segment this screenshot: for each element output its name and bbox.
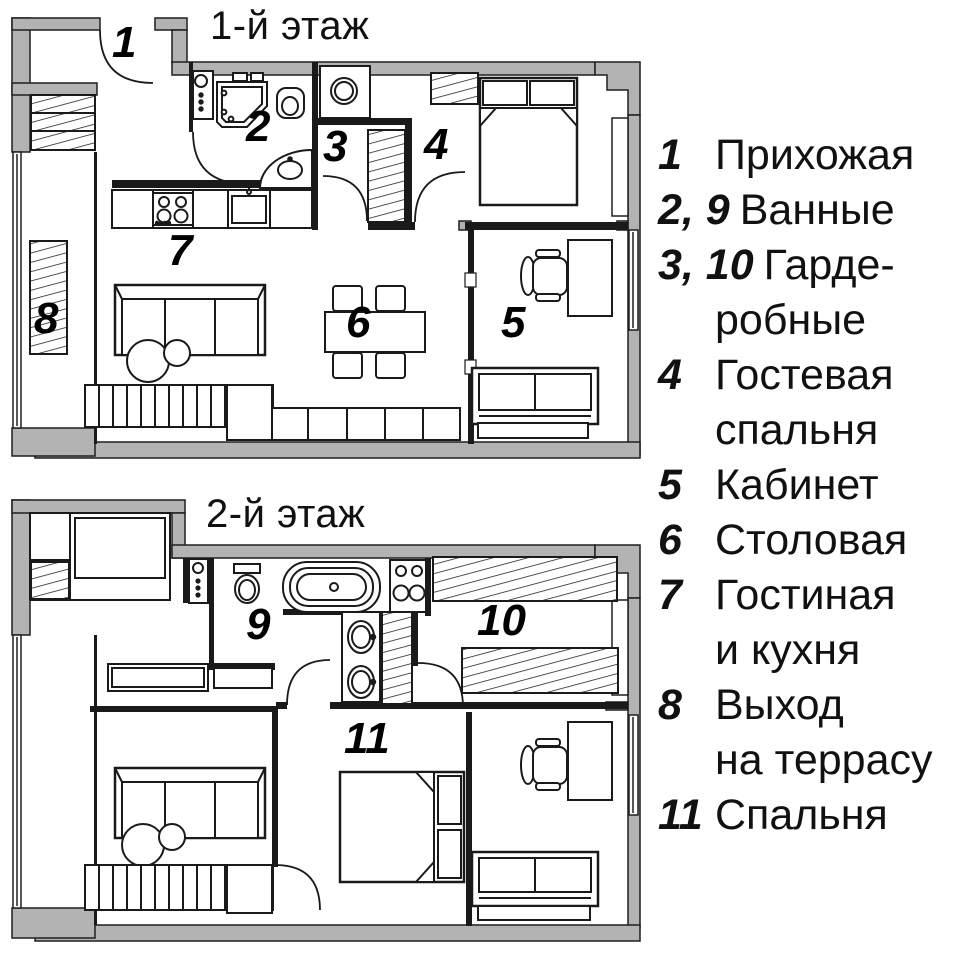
study-desk <box>568 240 612 316</box>
guest-bed <box>431 73 577 205</box>
dining-table <box>325 312 425 352</box>
floor2-title: 2-й этаж <box>206 492 365 537</box>
floor1-plan <box>12 18 640 458</box>
legend-item-label: Гостевая спальня <box>715 351 894 454</box>
wardrobe10-rack-bottom <box>462 648 618 693</box>
legend: 1Прихожая 2, 9Ванные 3, 10Гарде- робные … <box>640 128 958 843</box>
dining-set <box>325 286 425 378</box>
office-chair <box>521 739 567 790</box>
legend-item-numbers: 6 <box>658 513 705 568</box>
study-sofa <box>472 368 598 438</box>
bathtub <box>283 562 380 612</box>
linen-closet <box>382 612 412 704</box>
bed <box>340 772 464 882</box>
bathroom2-panel <box>193 71 213 119</box>
bathroom9-door-arc <box>287 660 330 705</box>
wardrobe10-door-arc <box>418 663 463 707</box>
coffee-table <box>122 824 164 866</box>
coffee-table <box>127 340 169 382</box>
bath-cabinet <box>214 668 272 688</box>
legend-item-label: Ванные <box>740 186 895 234</box>
room-label-9: 9 <box>246 600 270 650</box>
stairs <box>85 865 273 913</box>
dresser <box>108 664 208 691</box>
legend-item-label: Спальня <box>715 791 888 839</box>
bathroom2-door-arc <box>193 132 247 184</box>
room-label-4: 4 <box>424 120 448 170</box>
study-sofa <box>472 852 598 920</box>
office-chair <box>521 250 567 301</box>
bedroom4-door-arc <box>415 172 465 222</box>
room-label-10: 10 <box>477 596 526 646</box>
bathroom9-panel <box>189 559 208 603</box>
room-label-7: 7 <box>168 226 192 276</box>
legend-item: 7Гостиная и кухня <box>640 568 958 678</box>
closet-block <box>30 513 170 600</box>
double-sink <box>342 612 380 702</box>
bedroom11-door-arc <box>275 865 320 910</box>
legend-item: 8Выход на террасу <box>640 678 958 788</box>
legend-item: 5Кабинет <box>640 458 958 513</box>
floor2-furniture <box>30 513 618 920</box>
floor1-title: 1-й этаж <box>210 4 369 49</box>
legend-item: 6Столовая <box>640 513 958 568</box>
toilet <box>277 88 304 118</box>
side-table <box>164 340 190 366</box>
legend-item-numbers: 4 <box>658 348 705 403</box>
washer-dryer <box>390 560 426 612</box>
stove-icon <box>153 193 193 225</box>
legend-item: 3, 10Гарде- робные <box>640 238 958 348</box>
stairs <box>85 385 273 440</box>
legend-item: 2, 9Ванные <box>640 183 958 238</box>
wardrobe3-door-arc <box>323 176 367 221</box>
floor2-plan <box>12 500 640 941</box>
legend-item-label: Кабинет <box>715 461 879 509</box>
legend-item-numbers: 7 <box>658 568 705 623</box>
legend-item-label: Гостиная и кухня <box>715 571 895 674</box>
wardrobe10-rack-top <box>433 557 617 601</box>
legend-item-label: Столовая <box>715 516 907 564</box>
room-label-3: 3 <box>323 122 347 172</box>
room-label-5: 5 <box>501 298 525 348</box>
legend-item: 11Спальня <box>640 788 958 843</box>
legend-item-numbers: 1 <box>658 128 705 183</box>
entry-closet <box>31 95 95 150</box>
legend-item-numbers: 5 <box>658 458 705 513</box>
kitchen-counter <box>112 188 312 228</box>
bathroom2-sink <box>260 150 312 188</box>
legend-item-label: Выход на террасу <box>715 681 932 784</box>
terrace-steps <box>272 408 460 440</box>
room-label-6: 6 <box>346 298 370 348</box>
study-desk <box>568 722 612 800</box>
toilet <box>234 564 260 603</box>
legend-item-label: Прихожая <box>715 131 914 179</box>
room-label-11: 11 <box>344 714 390 764</box>
legend-item-numbers: 3, 10 <box>658 238 754 293</box>
legend-item: 4Гостевая спальня <box>640 348 958 458</box>
side-table <box>159 824 185 850</box>
room-label-2: 2 <box>246 102 270 152</box>
legend-item-numbers: 8 <box>658 678 705 733</box>
room-label-8: 8 <box>34 294 58 344</box>
legend-item: 1Прихожая <box>640 128 958 183</box>
room-label-1: 1 <box>112 18 136 68</box>
legend-item-numbers: 11 <box>658 788 705 843</box>
legend-item-numbers: 2, 9 <box>658 183 730 238</box>
